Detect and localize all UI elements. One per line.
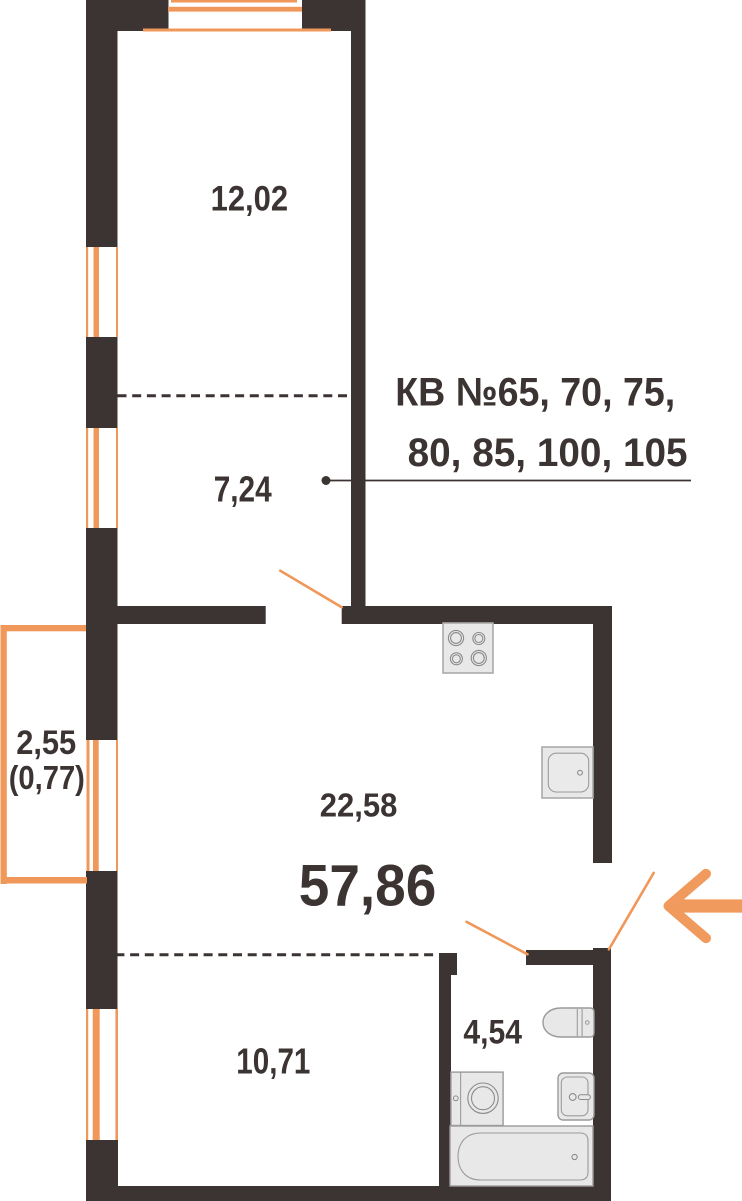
- svg-text:2,55: 2,55: [16, 724, 76, 762]
- svg-text:7,24: 7,24: [214, 469, 272, 510]
- svg-text:22,58: 22,58: [320, 787, 398, 824]
- svg-text:4,54: 4,54: [463, 1014, 522, 1052]
- svg-text:57,86: 57,86: [299, 853, 437, 918]
- svg-text:10,71: 10,71: [236, 1041, 310, 1082]
- svg-text:(0,77): (0,77): [9, 759, 85, 796]
- svg-text:12,02: 12,02: [211, 180, 289, 219]
- svg-text:80, 85, 100, 105: 80, 85, 100, 105: [408, 431, 688, 475]
- svg-text:КВ №65, 70, 75,: КВ №65, 70, 75,: [395, 371, 675, 415]
